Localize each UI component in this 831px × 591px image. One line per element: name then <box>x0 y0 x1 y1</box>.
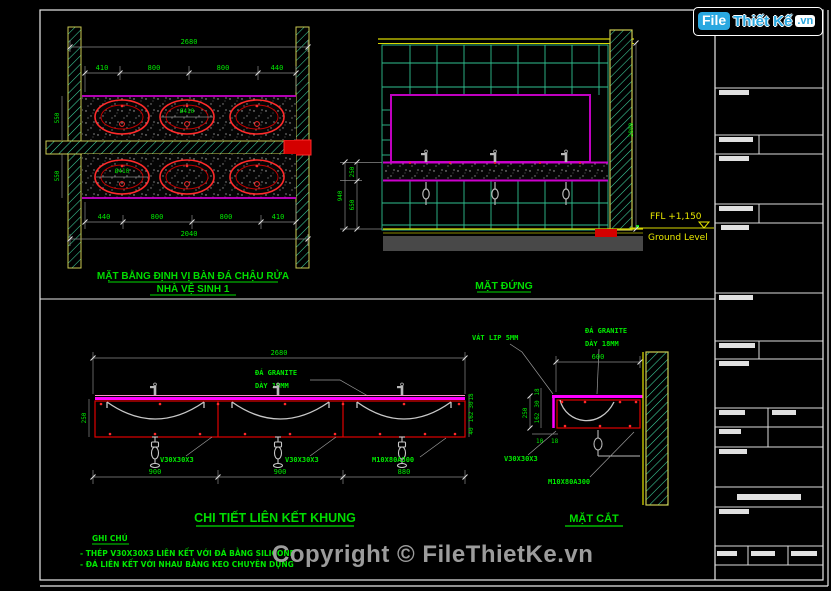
plan-dim-overall-bottom: 2040 <box>181 230 198 238</box>
detail-sink-bowls <box>107 402 451 419</box>
elevation-dim-counter-height: 940 <box>337 190 344 201</box>
title-block-strip <box>715 88 823 565</box>
detail-view: 2680 ĐÁ GRANITE DÀY 18MM <box>81 349 475 526</box>
bottle-trap-icon <box>423 182 429 205</box>
elevation-dim-band: 250 <box>349 166 356 177</box>
bottle-trap-icon <box>492 182 498 205</box>
section-view: VÁT LIP 5MM ĐÁ GRANITE DÀY 18MM 600 <box>472 326 668 526</box>
plan-dim-seg: 800 <box>151 213 164 221</box>
plan-title-line2: NHÀ VỆ SINH 1 <box>157 282 230 295</box>
detail-dim-chain: 162 <box>468 411 475 422</box>
plan-basin-diameter: Ø410 <box>115 168 130 175</box>
plan-dim-seg: 440 <box>271 64 284 72</box>
detail-dim-seg: 880 <box>398 468 411 476</box>
detail-angle-label: V30X30X3 <box>160 456 194 464</box>
section-bolts <box>561 401 638 428</box>
logo-file-badge: File <box>698 12 730 30</box>
elevation-floor <box>383 229 643 251</box>
title-block-redacted-text <box>717 90 817 556</box>
section-dim-chain: 30 <box>534 400 541 408</box>
plan-dim-depth: 550 <box>54 112 61 123</box>
section-dim-chain: 162 <box>534 412 541 423</box>
plan-dim-depth: 550 <box>54 170 61 181</box>
filethietke-logo[interactable]: File Thiết Kế .vn <box>693 7 823 36</box>
section-bolt-label: M10X80A300 <box>548 478 590 486</box>
elevation-floor-highlight <box>595 229 617 237</box>
plan-counter-bottom-room <box>82 154 296 198</box>
plan-dim-seg: 800 <box>220 213 233 221</box>
detail-dim-overall: 2680 <box>271 349 288 357</box>
logo-thietke-text: Thiết Kế <box>733 13 792 30</box>
p-trap-icon <box>151 437 160 468</box>
drawing-canvas: 2680 410 800 800 440 440 800 800 410 204… <box>0 0 831 591</box>
detail-dim-seg: 900 <box>149 468 162 476</box>
plan-dim-seg: 800 <box>217 64 230 72</box>
p-trap-icon <box>274 437 283 468</box>
cad-sheet: File Thiết Kế .vn Copyright © FileThietK… <box>0 0 831 591</box>
plan-basin-diameter: Ø410 <box>180 108 195 115</box>
notes-line1: - THÉP V30X30X3 LIÊN KẾT VỚI ĐÁ BẰNG SIL… <box>80 548 295 558</box>
section-wall <box>646 352 668 505</box>
elevation-title: MẶT ĐỨNG <box>475 279 533 292</box>
bottle-trap-icon <box>563 182 569 205</box>
section-sink-bowl <box>560 400 614 421</box>
elevation-mirror <box>391 95 590 162</box>
elevation-dim-total-height: 2800 <box>628 122 635 137</box>
section-dim-width: 600 <box>592 353 605 361</box>
section-granite-label2: DÀY 18MM <box>585 339 619 348</box>
detail-dim-chain: 30 <box>468 401 475 409</box>
section-dim-chain: 18 <box>534 388 541 396</box>
detail-dim-side: 250 <box>81 412 88 423</box>
faucet-icon <box>150 383 156 395</box>
notes-block: GHI CHÚ - THÉP V30X30X3 LIÊN KẾT VỚI ĐÁ … <box>80 534 295 569</box>
plan-dim-seg: 800 <box>148 64 161 72</box>
detail-title: CHI TIẾT LIÊN KẾT KHUNG <box>194 510 356 525</box>
plan-wall-highlight <box>284 140 311 155</box>
section-dim-side: 250 <box>522 407 529 418</box>
notes-heading: GHI CHÚ <box>92 534 128 543</box>
section-chamfer-label: VÁT LIP 5MM <box>472 333 518 342</box>
logo-vn-badge: .vn <box>795 15 815 27</box>
plan-title-line1: MẶT BẰNG ĐỊNH VỊ BÀN ĐÁ CHẬU RỬA <box>97 269 289 282</box>
faucet-icon <box>397 383 403 395</box>
detail-dim-chain: 40 <box>468 427 475 435</box>
plan-dims-bottom <box>70 202 308 246</box>
plan-counter-top-room <box>82 96 296 140</box>
detail-dim-chain: 18 <box>468 393 475 401</box>
elevation-dim-below: 650 <box>349 199 356 210</box>
section-dim-small: 10 <box>536 438 544 445</box>
plan-dim-seg: 410 <box>272 213 285 221</box>
section-trap-icon <box>594 430 640 456</box>
elevation-view: FFL +1,150 Ground Level 250 650 940 2800… <box>337 30 714 292</box>
section-dim-small: 18 <box>551 438 559 445</box>
notes-line2: - ĐÁ LIÊN KẾT VỚI NHAU BẰNG KEO CHUYÊN D… <box>80 559 294 569</box>
ground-level-label: Ground Level <box>648 233 708 243</box>
detail-granite-label1: ĐÁ GRANITE <box>255 368 297 377</box>
plan-dim-seg: 410 <box>96 64 109 72</box>
plan-dim-overall-top: 2680 <box>181 38 198 46</box>
detail-angle-label: V30X30X3 <box>285 456 319 464</box>
detail-granite-label2: DÀY 18MM <box>255 381 289 390</box>
ffl-label: FFL +1,150 <box>650 212 702 222</box>
detail-bolt-label: M10X80A300 <box>372 456 414 464</box>
section-granite-label1: ĐÁ GRANITE <box>585 326 627 335</box>
section-angle-label: V30X30X3 <box>504 455 538 463</box>
plan-view: 2680 410 800 800 440 440 800 800 410 204… <box>46 27 311 295</box>
elevation-counter <box>383 162 608 181</box>
copyright-watermark: Copyright © FileThietKe.vn <box>272 541 593 569</box>
detail-dim-seg: 900 <box>274 468 287 476</box>
section-title: MẶT CẮT <box>569 512 619 525</box>
plan-dim-seg: 440 <box>98 213 111 221</box>
